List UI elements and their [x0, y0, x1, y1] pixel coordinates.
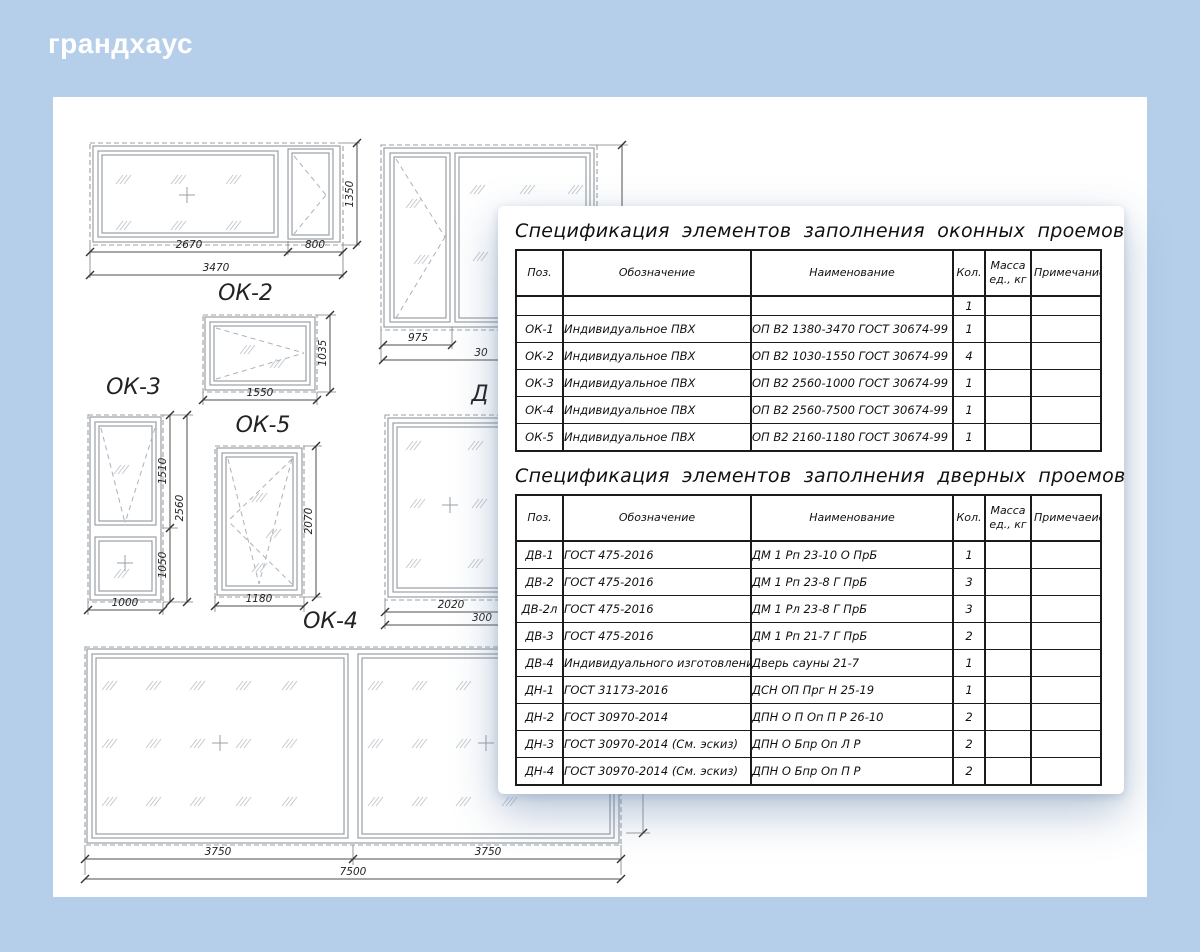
- dim-label: 3750: [475, 846, 502, 858]
- cell-pos: ОК-1: [516, 316, 563, 343]
- cell-mass: [985, 296, 1031, 316]
- dim-label: 300: [472, 612, 492, 624]
- window-label-ok4: ОК-4: [293, 609, 368, 634]
- cell-designation: Индивидуальное ПВХ: [563, 397, 751, 424]
- table-row: ДВ-4Индивидуального изготовленияДверь са…: [516, 650, 1101, 677]
- cell-name: ДМ 1 Рп 23-10 О ПрБ: [751, 541, 953, 569]
- table-row: ДН-2ГОСТ 30970-2014ДПН О П Оп П Р 26-102: [516, 704, 1101, 731]
- cell-pos: ОК-4: [516, 397, 563, 424]
- cell-name: ОП В2 1380-3470 ГОСТ 30674-99: [751, 316, 953, 343]
- cell-note: [1031, 541, 1101, 569]
- header-mass: Масса ед., кг: [985, 250, 1031, 296]
- cell-qty: 2: [953, 704, 985, 731]
- table-row: ДН-4ГОСТ 30970-2014 (См. эскиз)ДПН О Бпр…: [516, 758, 1101, 786]
- cell-qty: 1: [953, 370, 985, 397]
- doors-spec-title: Спецификация элементов заполнения дверны…: [515, 465, 1103, 487]
- window-drawing-d: 1035 1550: [198, 307, 343, 412]
- dim-label: 1510: [157, 457, 169, 484]
- cell-note: [1031, 296, 1101, 316]
- table-row: ДВ-2лГОСТ 475-2016ДМ 1 Рл 23-8 Г ПрБ3: [516, 596, 1101, 623]
- cell-mass: [985, 623, 1031, 650]
- cell-qty: 2: [953, 758, 985, 786]
- cell-qty: 2: [953, 731, 985, 758]
- header-pos: Поз.: [516, 495, 563, 541]
- cell-name: Дверь сауны 21-7: [751, 650, 953, 677]
- window-drawing-e: 2070 1180: [208, 437, 333, 622]
- cell-pos: ДН-3: [516, 731, 563, 758]
- dim-label: 975: [408, 332, 428, 344]
- cell-designation: Индивидуальное ПВХ: [563, 343, 751, 370]
- windows-spec-table: Поз. Обозначение Наименование Кол. Масса…: [515, 249, 1102, 452]
- dim-label: 1035: [317, 339, 329, 366]
- cell-name: ОП В2 2160-1180 ГОСТ 30674-99: [751, 424, 953, 452]
- cell-qty: 2: [953, 623, 985, 650]
- dim-label: 7500: [340, 866, 367, 878]
- cell-designation: ГОСТ 475-2016: [563, 569, 751, 596]
- header-qty: Кол.: [953, 495, 985, 541]
- window-drawing-c: 1510 1050 2560 1000: [78, 397, 213, 632]
- cell-note: [1031, 731, 1101, 758]
- dim-label: 1350: [344, 180, 356, 207]
- dim-label: 2670: [176, 239, 203, 251]
- cell-pos: ДН-1: [516, 677, 563, 704]
- table-row: ОК-4Индивидуальное ПВХОП В2 2560-7500 ГО…: [516, 397, 1101, 424]
- cell-name: ДМ 1 Рп 23-8 Г ПрБ: [751, 569, 953, 596]
- cell-name: ДМ 1 Рл 23-8 Г ПрБ: [751, 596, 953, 623]
- header-name: Наименование: [751, 495, 953, 541]
- cell-note: [1031, 650, 1101, 677]
- cell-designation: ГОСТ 30970-2014 (См. эскиз): [563, 758, 751, 786]
- cell-designation: Индивидуальное ПВХ: [563, 424, 751, 452]
- cell-note: [1031, 370, 1101, 397]
- dim-label: 1050: [157, 551, 169, 578]
- cell-note: [1031, 623, 1101, 650]
- cell-qty: 1: [953, 316, 985, 343]
- table-header-row: Поз. Обозначение Наименование Кол. Масса…: [516, 495, 1101, 541]
- cell-qty: 1: [953, 677, 985, 704]
- cell-qty: 4: [953, 343, 985, 370]
- page: { "logo": "грандхаус", "colors": {"backg…: [0, 0, 1200, 952]
- cell-note: [1031, 569, 1101, 596]
- cell-mass: [985, 731, 1031, 758]
- cell-qty: 1: [953, 397, 985, 424]
- specification-card: Спецификация элементов заполнения оконны…: [498, 206, 1124, 794]
- dim-label: 1550: [247, 387, 274, 399]
- cell-note: [1031, 316, 1101, 343]
- cell-pos: ОК-2: [516, 343, 563, 370]
- header-note: Примечание: [1031, 250, 1101, 296]
- header-designation: Обозначение: [563, 495, 751, 541]
- window-label-ok5: ОК-5: [223, 413, 303, 438]
- header-name: Наименование: [751, 250, 953, 296]
- dim-label: 3470: [203, 262, 230, 274]
- header-pos: Поз.: [516, 250, 563, 296]
- cell-pos: ДВ-2л: [516, 596, 563, 623]
- cell-mass: [985, 596, 1031, 623]
- cell-name: [751, 296, 953, 316]
- cell-note: [1031, 758, 1101, 786]
- cell-name: ДПН О Бпр Оп Л Р: [751, 731, 953, 758]
- cell-mass: [985, 758, 1031, 786]
- dim-label: 1000: [112, 597, 139, 609]
- dim-label: 2020: [438, 599, 465, 611]
- cell-designation: Индивидуального изготовления: [563, 650, 751, 677]
- cell-designation: ГОСТ 475-2016: [563, 596, 751, 623]
- table-row: ОК-1Индивидуальное ПВХОП В2 1380-3470 ГО…: [516, 316, 1101, 343]
- cell-qty: 1: [953, 650, 985, 677]
- cell-note: [1031, 596, 1101, 623]
- cell-mass: [985, 316, 1031, 343]
- cell-designation: [563, 296, 751, 316]
- cell-qty: 3: [953, 569, 985, 596]
- cell-mass: [985, 343, 1031, 370]
- table-row: ДВ-2ГОСТ 475-2016ДМ 1 Рп 23-8 Г ПрБ3: [516, 569, 1101, 596]
- cell-pos: ДВ-2: [516, 569, 563, 596]
- table-row: ДН-3ГОСТ 30970-2014 (См. эскиз)ДПН О Бпр…: [516, 731, 1101, 758]
- window-label-ok3: ОК-3: [91, 375, 176, 400]
- cell-qty: 1: [953, 541, 985, 569]
- table-row: ОК-5Индивидуальное ПВХОП В2 2160-1180 ГО…: [516, 424, 1101, 452]
- cell-name: ОП В2 1030-1550 ГОСТ 30674-99: [751, 343, 953, 370]
- table-row: ДН-1ГОСТ 31173-2016ДСН ОП Прг Н 25-191: [516, 677, 1101, 704]
- header-designation: Обозначение: [563, 250, 751, 296]
- header-note: Примечаеие: [1031, 495, 1101, 541]
- cell-mass: [985, 424, 1031, 452]
- dim-label: 2070: [303, 507, 315, 534]
- window-label-ok2: ОК-2: [198, 281, 293, 306]
- cell-mass: [985, 650, 1031, 677]
- table-header-row: Поз. Обозначение Наименование Кол. Масса…: [516, 250, 1101, 296]
- window-label-partial: Д: [465, 382, 495, 407]
- cell-pos: [516, 296, 563, 316]
- table-row: 1: [516, 296, 1101, 316]
- cell-name: ДСН ОП Прг Н 25-19: [751, 677, 953, 704]
- cell-pos: ДН-2: [516, 704, 563, 731]
- brand-logo: грандхаус: [48, 28, 193, 60]
- cell-name: ОП В2 2560-7500 ГОСТ 30674-99: [751, 397, 953, 424]
- cell-mass: [985, 541, 1031, 569]
- cell-pos: ДВ-4: [516, 650, 563, 677]
- cell-qty: 1: [953, 296, 985, 316]
- cell-name: ДПН О П Оп П Р 26-10: [751, 704, 953, 731]
- cell-designation: ГОСТ 475-2016: [563, 541, 751, 569]
- table-row: ОК-3Индивидуальное ПВХОП В2 2560-1000 ГО…: [516, 370, 1101, 397]
- cell-name: ДМ 1 Рп 21-7 Г ПрБ: [751, 623, 953, 650]
- table-row: ДВ-1ГОСТ 475-2016ДМ 1 Рп 23-10 О ПрБ1: [516, 541, 1101, 569]
- dim-label: 1180: [246, 593, 273, 605]
- cell-designation: ГОСТ 30970-2014 (См. эскиз): [563, 731, 751, 758]
- header-qty: Кол.: [953, 250, 985, 296]
- cell-note: [1031, 424, 1101, 452]
- cell-name: ДПН О Бпр Оп П Р: [751, 758, 953, 786]
- cell-note: [1031, 397, 1101, 424]
- cell-note: [1031, 677, 1101, 704]
- header-mass: Масса ед., кг: [985, 495, 1031, 541]
- doors-spec-table: Поз. Обозначение Наименование Кол. Масса…: [515, 494, 1102, 786]
- table-row: ДВ-3ГОСТ 475-2016ДМ 1 Рп 21-7 Г ПрБ2: [516, 623, 1101, 650]
- cell-pos: ДВ-1: [516, 541, 563, 569]
- dim-label: 3750: [205, 846, 232, 858]
- cell-designation: Индивидуальное ПВХ: [563, 370, 751, 397]
- cell-name: ОП В2 2560-1000 ГОСТ 30674-99: [751, 370, 953, 397]
- cell-qty: 1: [953, 424, 985, 452]
- cell-pos: ОК-3: [516, 370, 563, 397]
- dim-label: 30: [474, 347, 488, 359]
- cell-mass: [985, 370, 1031, 397]
- cell-designation: ГОСТ 31173-2016: [563, 677, 751, 704]
- table-row: ОК-2Индивидуальное ПВХОП В2 1030-1550 ГО…: [516, 343, 1101, 370]
- cell-pos: ДН-4: [516, 758, 563, 786]
- cell-designation: Индивидуальное ПВХ: [563, 316, 751, 343]
- cell-qty: 3: [953, 596, 985, 623]
- windows-spec-title: Спецификация элементов заполнения оконны…: [515, 220, 1103, 242]
- cell-note: [1031, 343, 1101, 370]
- dim-label: 2560: [174, 494, 186, 521]
- cell-mass: [985, 677, 1031, 704]
- cell-pos: ОК-5: [516, 424, 563, 452]
- cell-mass: [985, 397, 1031, 424]
- cell-designation: ГОСТ 30970-2014: [563, 704, 751, 731]
- cell-mass: [985, 569, 1031, 596]
- dim-label: 800: [305, 239, 325, 251]
- cell-pos: ДВ-3: [516, 623, 563, 650]
- cell-mass: [985, 704, 1031, 731]
- cell-note: [1031, 704, 1101, 731]
- cell-designation: ГОСТ 475-2016: [563, 623, 751, 650]
